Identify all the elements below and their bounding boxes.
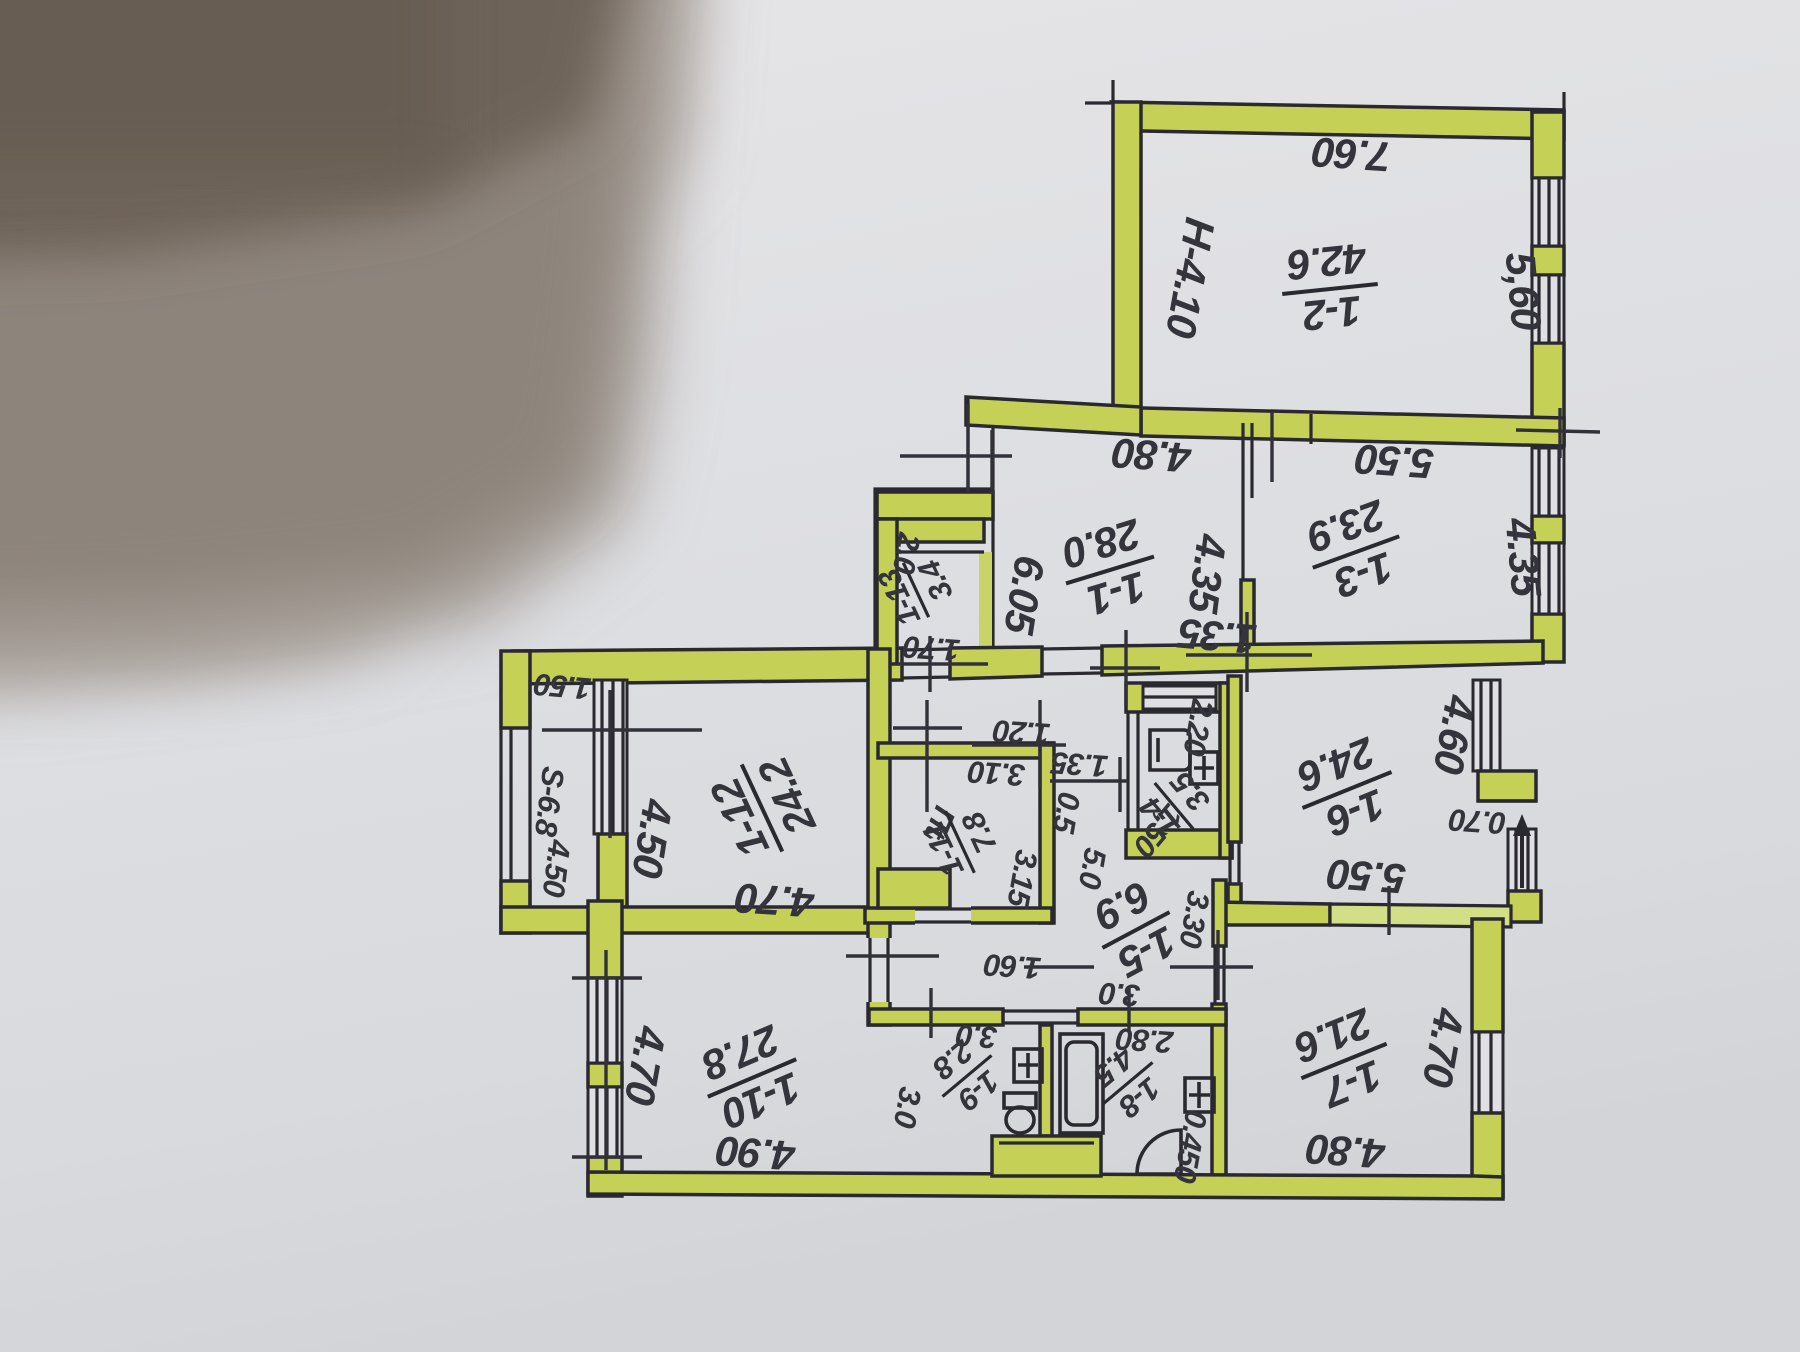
svg-text:1.70: 1.70	[902, 629, 961, 668]
svg-text:4.80: 4.80	[1305, 1125, 1387, 1177]
svg-text:3.0: 3.0	[887, 1084, 929, 1130]
svg-text:1.35: 1.35	[1049, 745, 1109, 784]
svg-text:1.60: 1.60	[983, 947, 1042, 986]
svg-text:3.10: 3.10	[967, 754, 1026, 793]
svg-text:4.70: 4.70	[734, 874, 816, 926]
svg-text:3.0: 3.0	[955, 1018, 998, 1056]
svg-text:4.90: 4.90	[715, 1127, 797, 1179]
svg-text:3.0: 3.0	[1098, 976, 1141, 1014]
svg-text:4.35: 4.35	[1179, 531, 1235, 617]
svg-text:1.50: 1.50	[533, 667, 593, 707]
svg-text:1.35: 1.35	[1175, 610, 1258, 664]
svg-text:5.50: 5.50	[1326, 850, 1407, 902]
svg-text:2.0: 2.0	[886, 529, 928, 576]
svg-text:1-2: 1-2	[1301, 287, 1364, 340]
svg-text:5,60: 5,60	[1497, 250, 1551, 332]
svg-text:0.70: 0.70	[1448, 802, 1507, 841]
svg-text:4.50: 4.50	[536, 837, 578, 899]
svg-text:1.20: 1.20	[992, 713, 1051, 752]
svg-text:4.80: 4.80	[1111, 429, 1193, 481]
svg-text:42.6: 42.6	[1284, 234, 1369, 289]
svg-text:4.35: 4.35	[1497, 515, 1551, 599]
svg-text:7.60: 7.60	[1311, 128, 1392, 180]
svg-text:0.5: 0.5	[1045, 789, 1087, 836]
svg-text:5.0: 5.0	[1072, 845, 1114, 891]
svg-text:5.50: 5.50	[1354, 435, 1435, 487]
